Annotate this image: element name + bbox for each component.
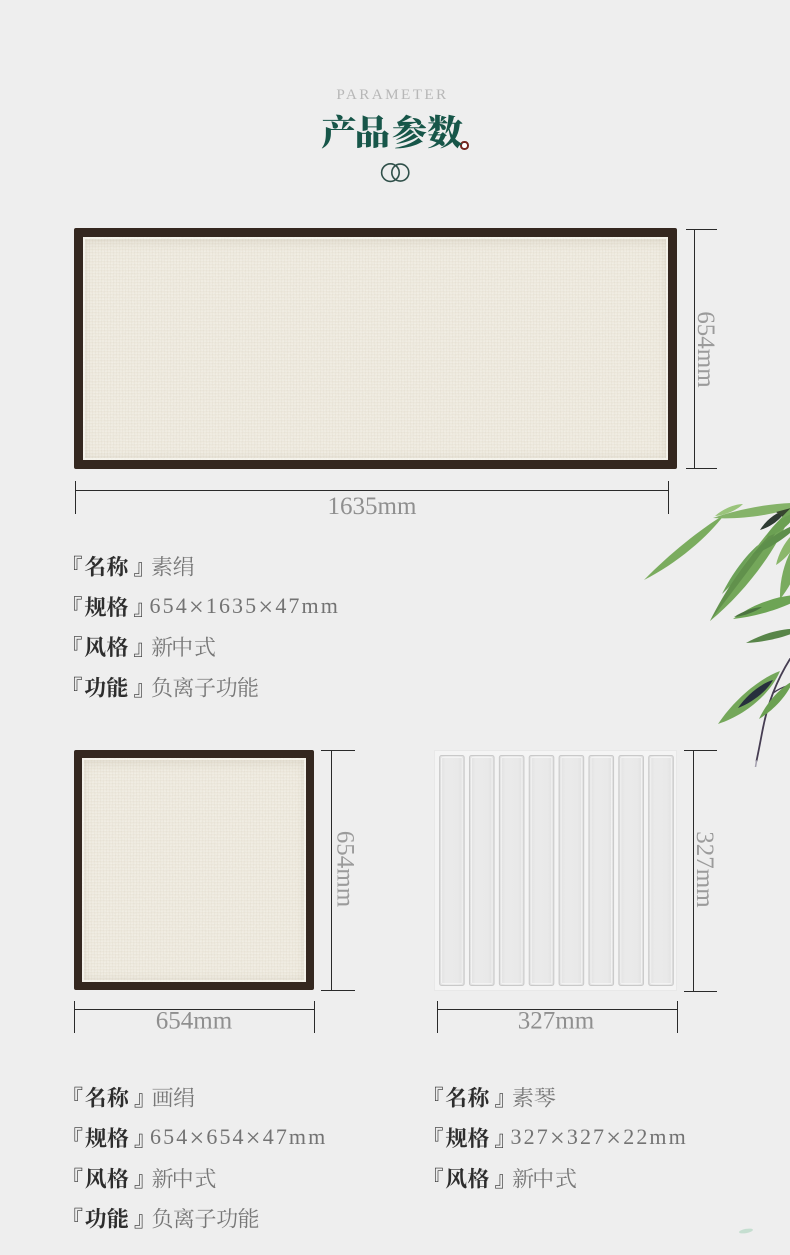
svg-text:PARAMETER: PARAMETER — [336, 86, 448, 103]
svg-text:654×654×47mm: 654×654×47mm — [150, 1122, 327, 1152]
svg-text:654mm: 654mm — [692, 311, 719, 388]
svg-text:327mm: 327mm — [518, 1008, 595, 1035]
svg-text:1635mm: 1635mm — [328, 493, 417, 520]
svg-text:654mm: 654mm — [331, 831, 358, 908]
svg-text:327mm: 327mm — [691, 831, 718, 908]
svg-text:327×327×22mm: 327×327×22mm — [511, 1122, 688, 1152]
svg-text:654×1635×47mm: 654×1635×47mm — [150, 591, 340, 621]
svg-text:654mm: 654mm — [156, 1008, 233, 1035]
